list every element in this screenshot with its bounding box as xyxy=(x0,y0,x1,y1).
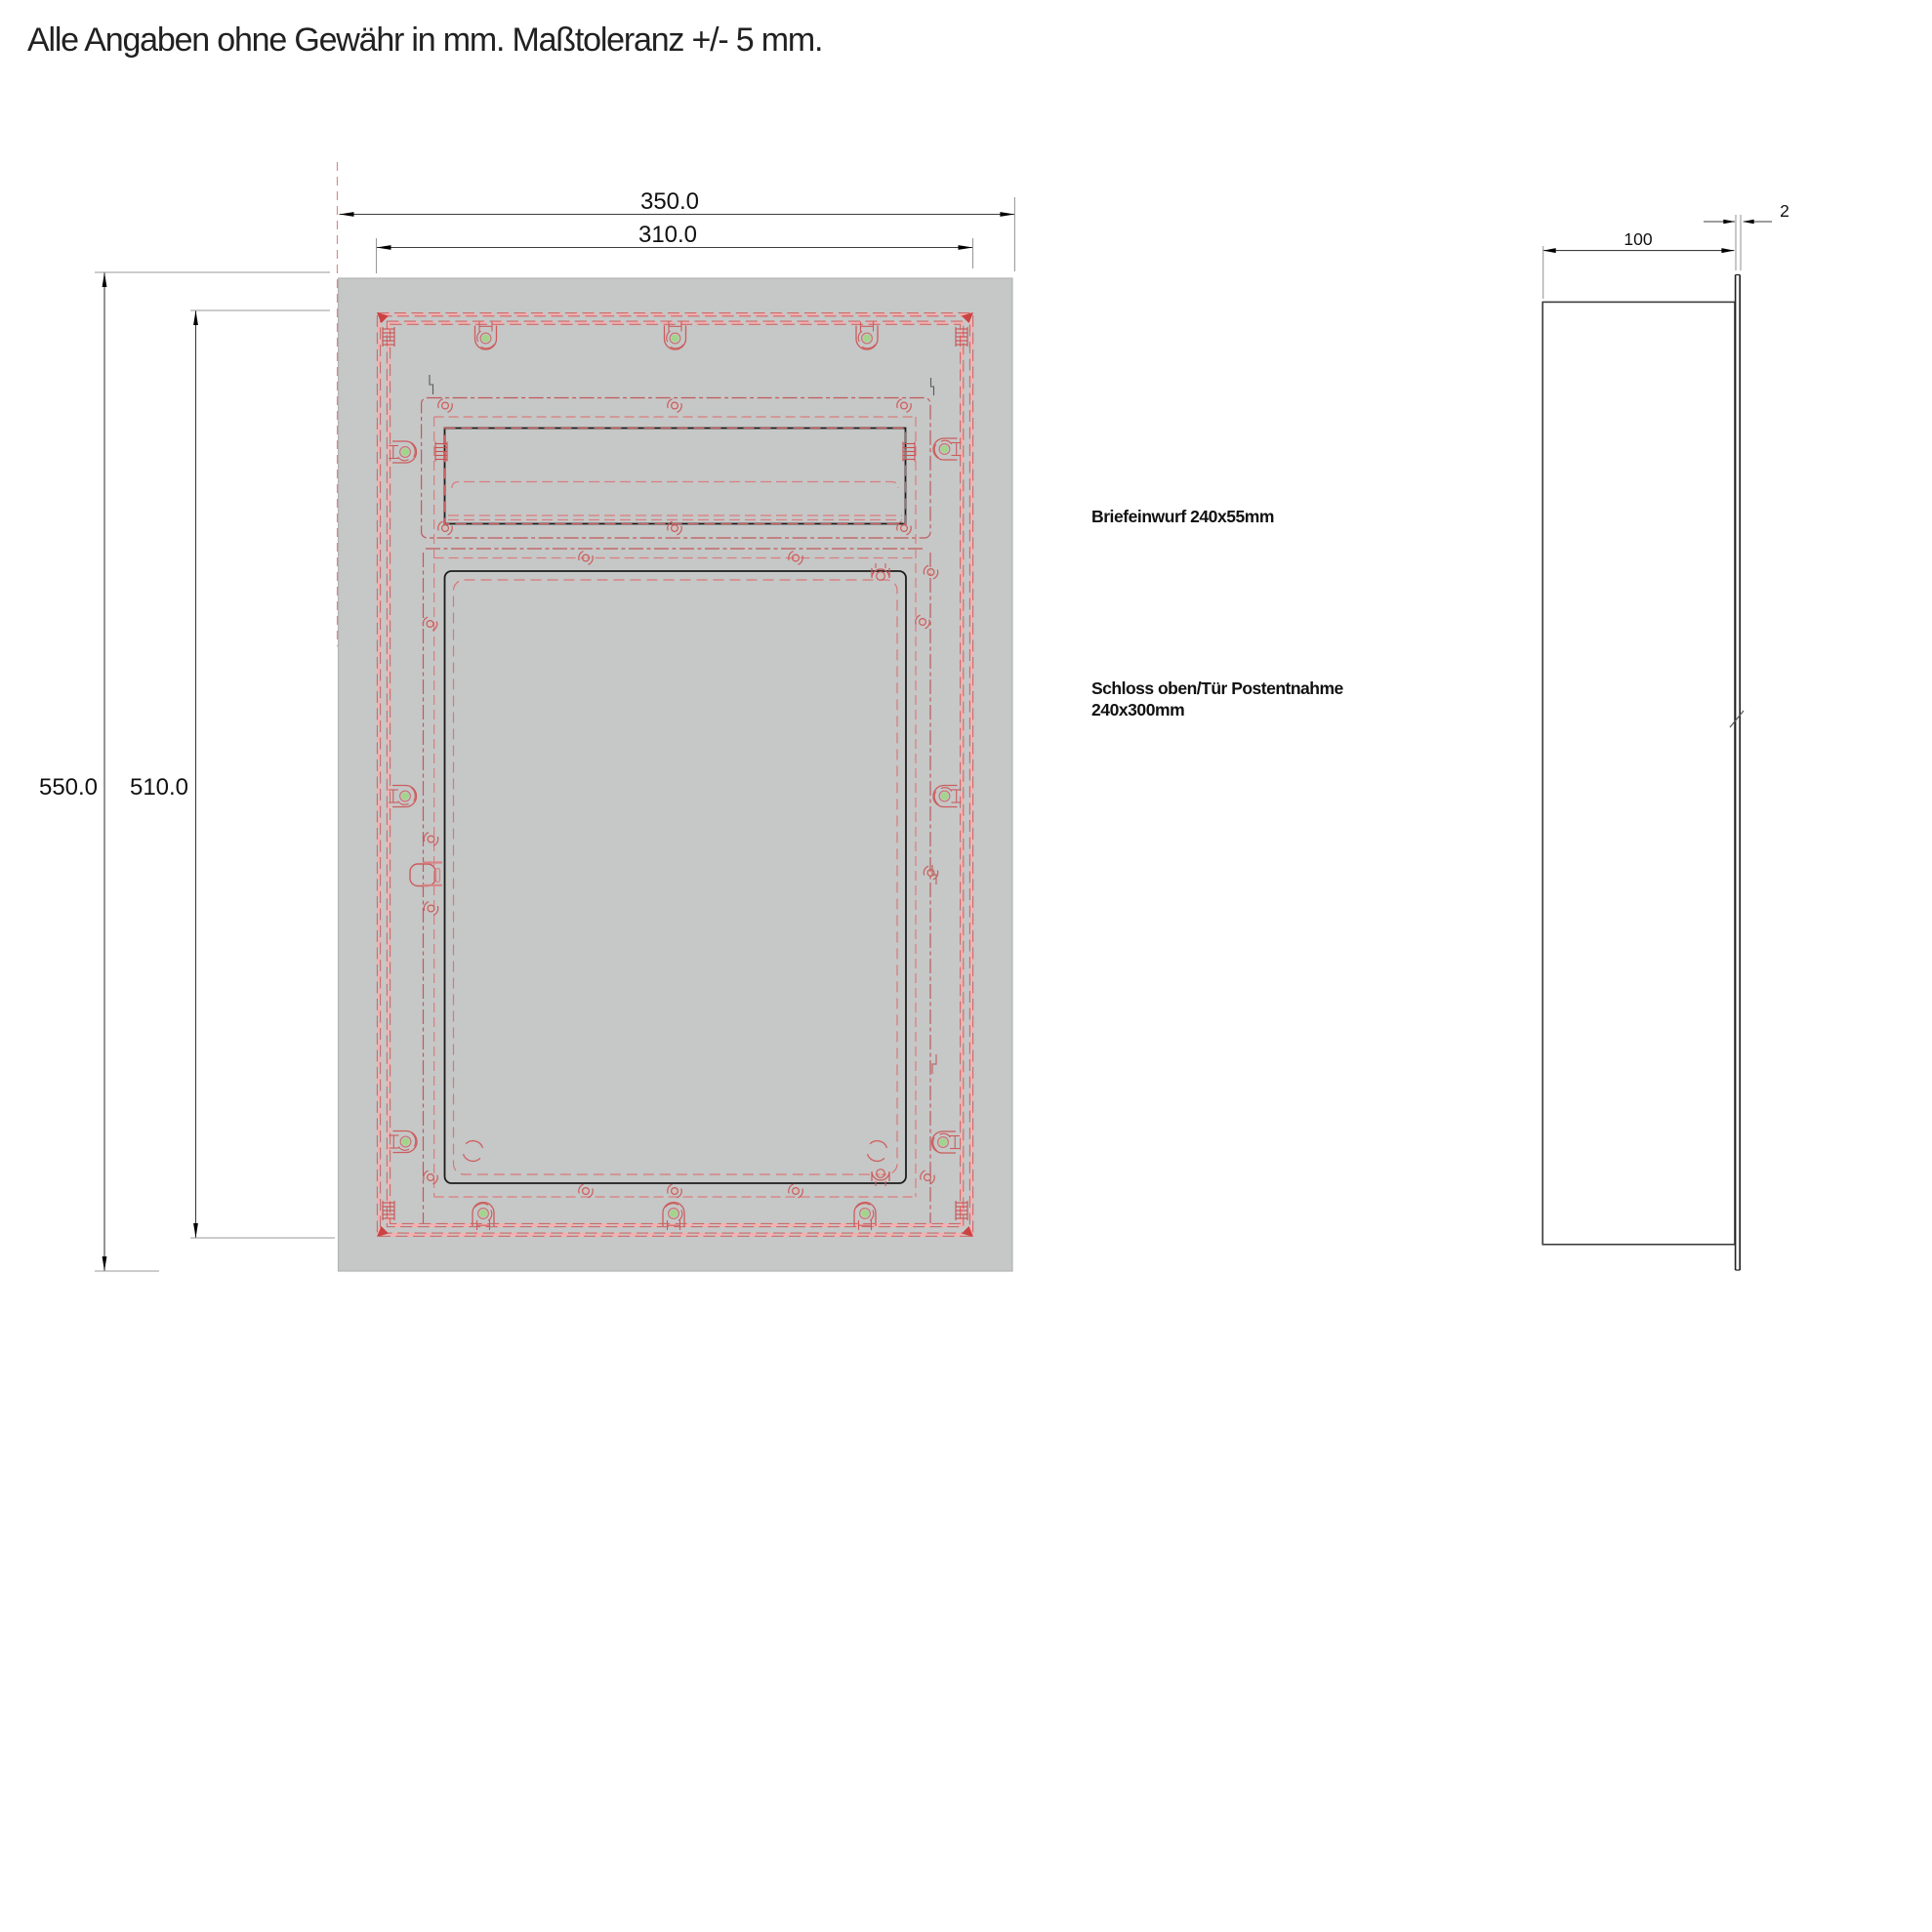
svg-text:350.0: 350.0 xyxy=(640,188,699,215)
svg-text:240x300mm: 240x300mm xyxy=(1091,700,1184,719)
svg-text:510.0: 510.0 xyxy=(130,774,188,801)
svg-text:Alle Angaben ohne Gewähr in mm: Alle Angaben ohne Gewähr in mm. Maßtoler… xyxy=(27,21,822,59)
svg-text:Briefeinwurf 240x55mm: Briefeinwurf 240x55mm xyxy=(1091,507,1274,526)
svg-text:100: 100 xyxy=(1624,229,1652,249)
svg-text:Schloss oben/Tür Postentnahme: Schloss oben/Tür Postentnahme xyxy=(1091,678,1344,698)
svg-text:2: 2 xyxy=(1780,201,1789,221)
svg-text:550.0: 550.0 xyxy=(39,774,98,801)
svg-text:310.0: 310.0 xyxy=(638,222,697,248)
